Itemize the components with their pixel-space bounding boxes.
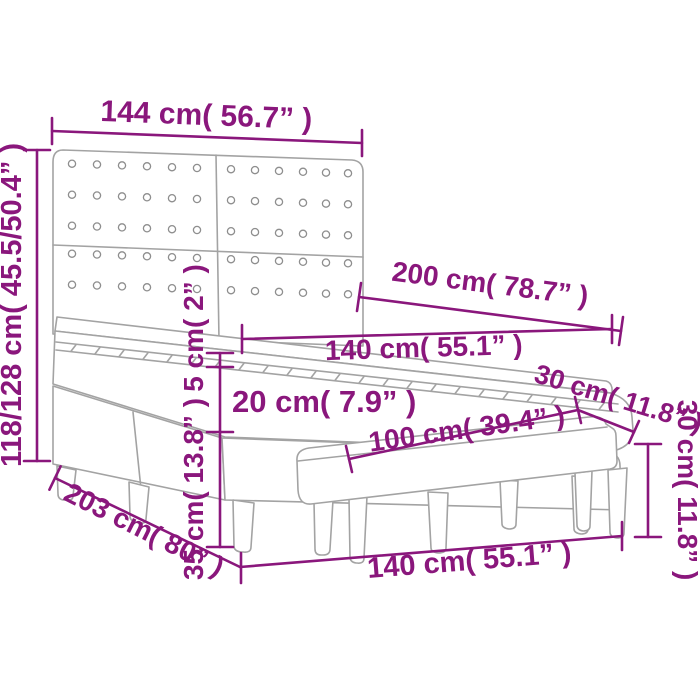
label-headboard-width: 144 cm( 56.7” ) (100, 95, 313, 136)
label-bed-length: 200 cm( 78.7” ) (390, 256, 590, 312)
label-mattress-width: 140 cm( 55.1” ) (324, 329, 523, 366)
label-bench-height: 30 cm( 11.8” ) (672, 400, 700, 581)
label-bed-width: 140 cm( 55.1” ) (366, 537, 573, 585)
label-total-height: 118/128 cm( 45.5/50.4” ) (0, 143, 28, 467)
bed-diagram-canvas: 144 cm( 56.7” ) 118/128 cm( 45.5/50.4” )… (0, 0, 700, 700)
dim-bench-height-line (635, 444, 661, 537)
label-mattress-height: 20 cm( 7.9” ) (232, 384, 416, 419)
dimension-diagram: 144 cm( 56.7” ) 118/128 cm( 45.5/50.4” )… (0, 0, 700, 700)
label-topper-height: 5 cm( 2” ) (178, 264, 209, 392)
